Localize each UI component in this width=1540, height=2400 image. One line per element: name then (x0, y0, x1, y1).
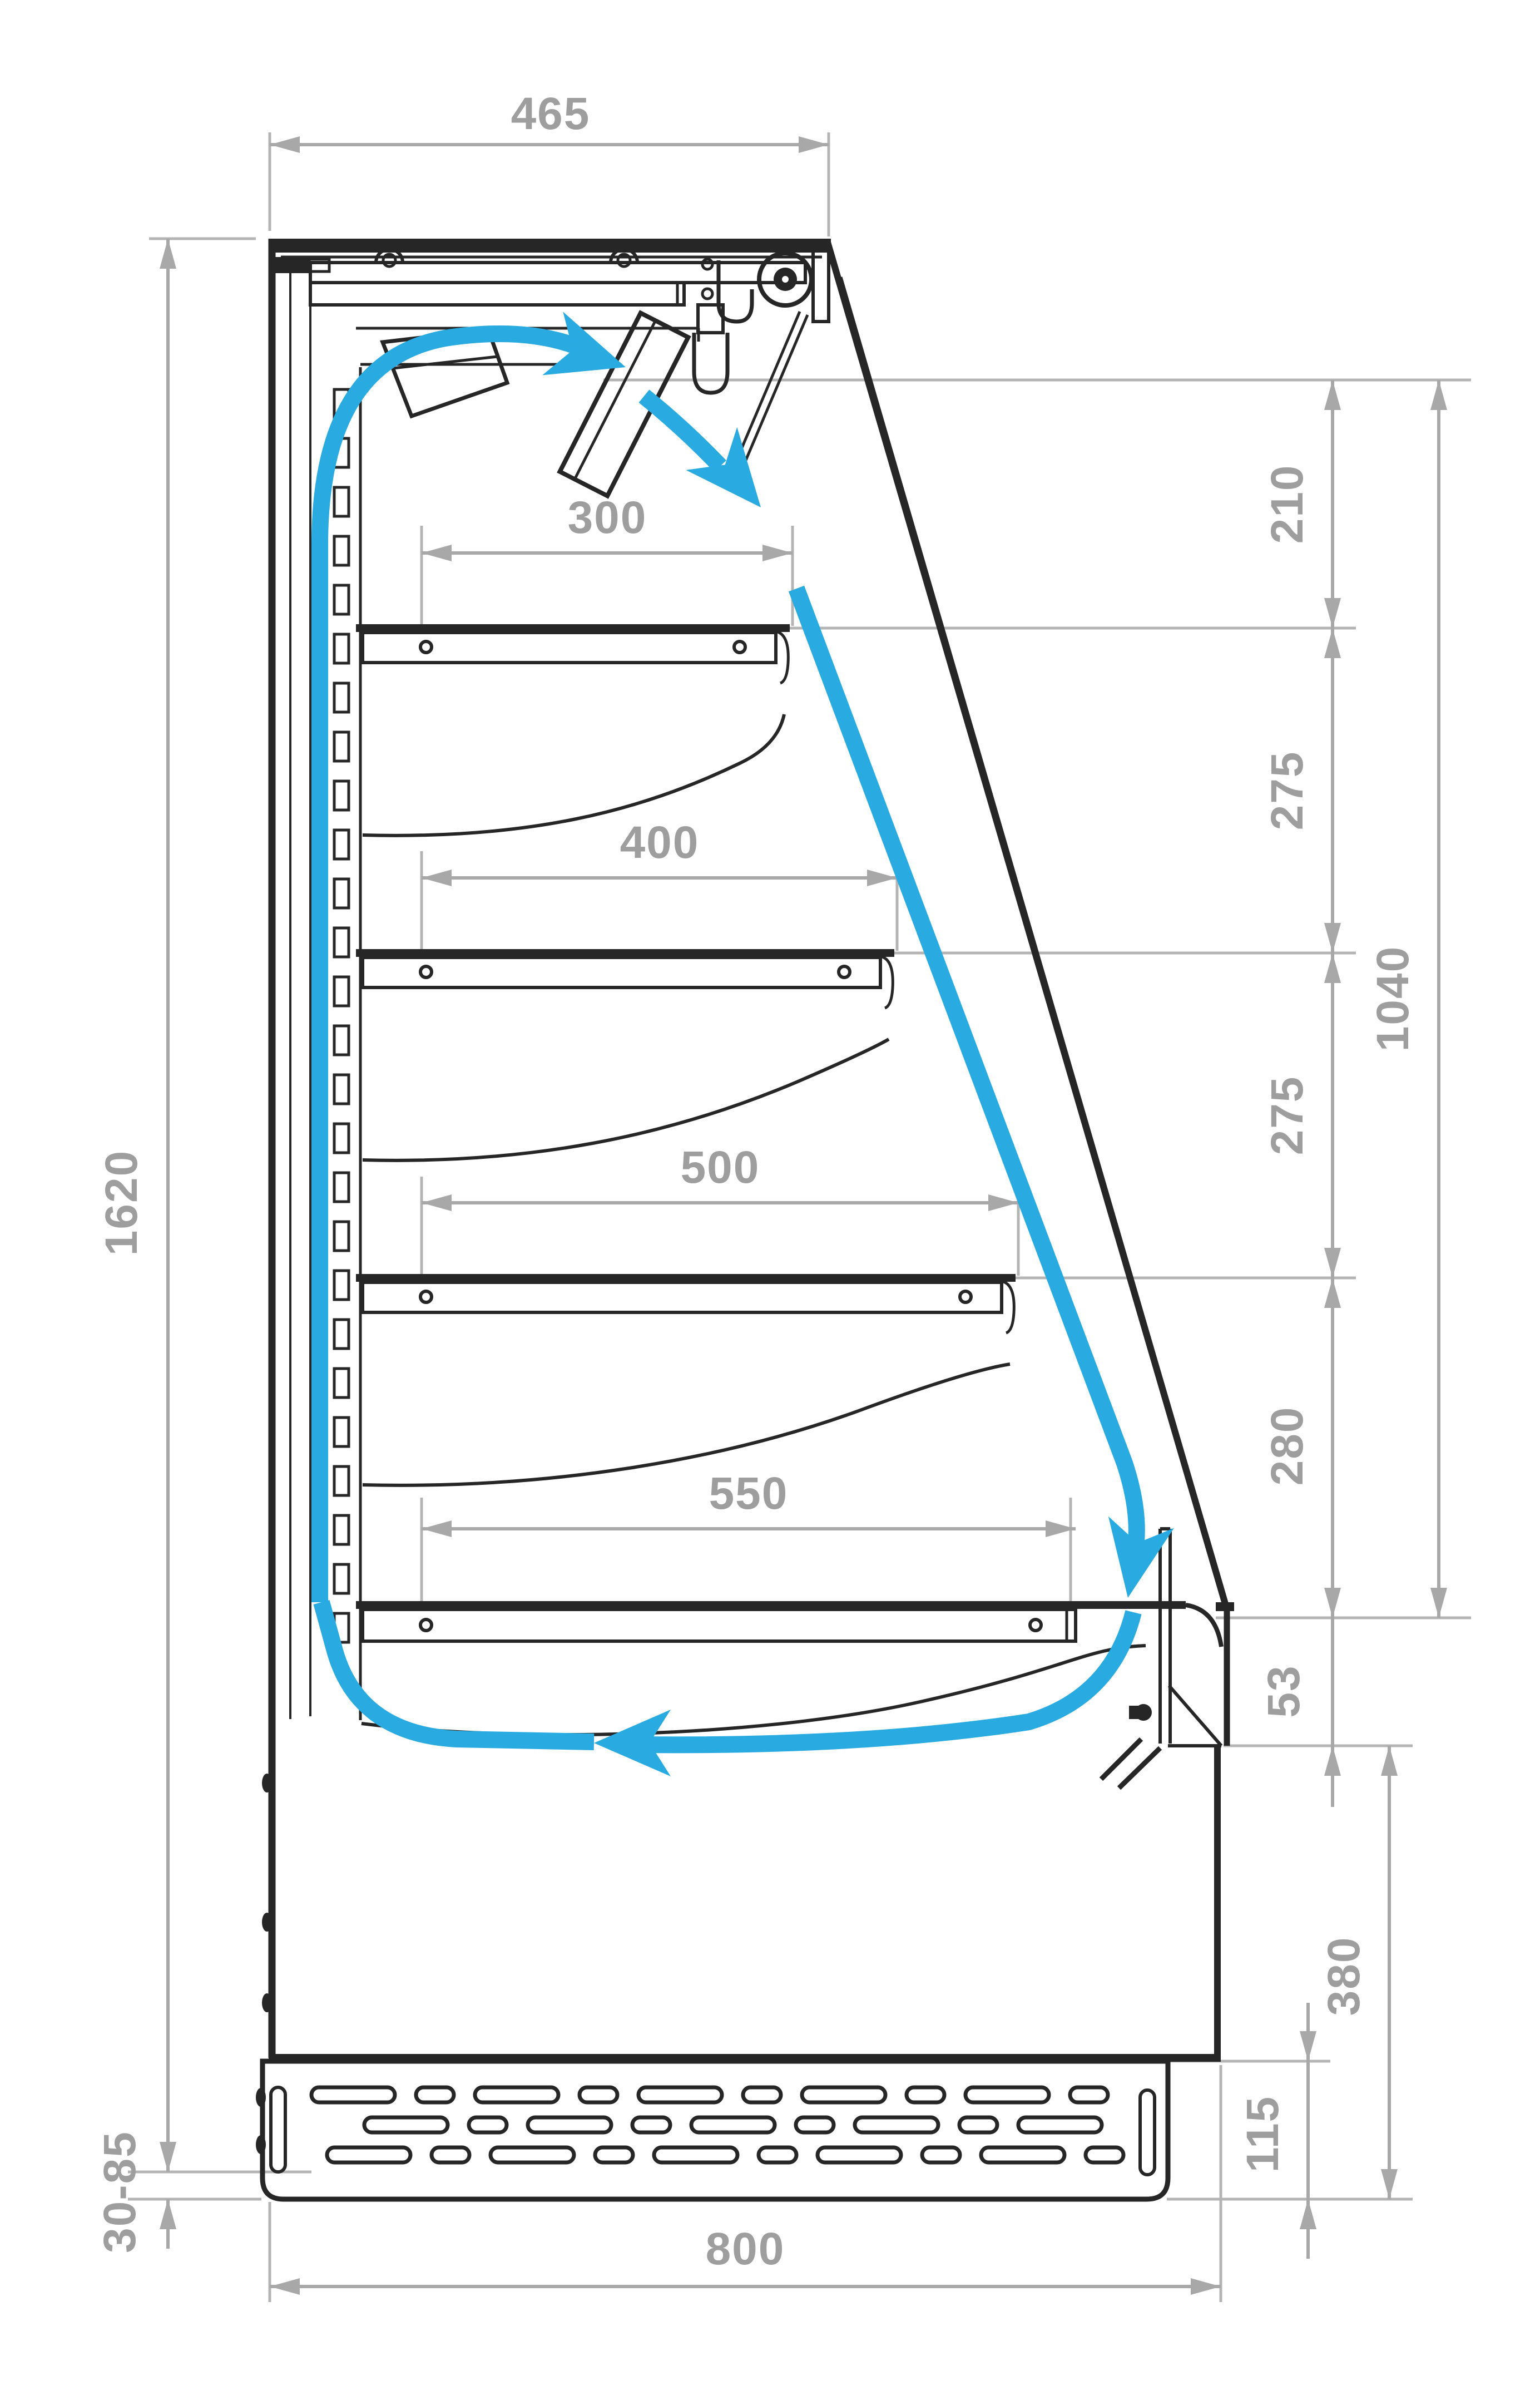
lamp-tube (694, 333, 727, 393)
dim-sill-53-label: 53 (1259, 1665, 1309, 1717)
vent-slot (469, 2117, 507, 2132)
shelf-standard-slot (334, 1418, 349, 1446)
shelf-standard-slot (334, 487, 349, 516)
vent-slot (907, 2087, 944, 2102)
vent-slot (759, 2147, 796, 2162)
shelf-standard-slot (334, 1369, 349, 1397)
vent-slot (965, 2087, 1049, 2102)
vent-slot (632, 2117, 670, 2132)
vent-end-slot (271, 2087, 285, 2172)
vent-slot (638, 2087, 722, 2102)
shelf-standard-slot (334, 1271, 349, 1300)
vent-slot (691, 2117, 775, 2132)
vent-panel (263, 2061, 1168, 2199)
airflow-air-curtain (796, 589, 1137, 1547)
shelf-standard-slot (334, 1564, 349, 1593)
shelf-standard-slot (334, 1075, 349, 1104)
shelf-standard-slots (334, 389, 349, 1642)
cabinet-outline (256, 239, 1234, 2199)
shelf-standard-slot (334, 977, 349, 1006)
shelf-standard-slot (334, 634, 349, 663)
airflow-path (320, 312, 1174, 1776)
shelf-standard-slot (334, 1222, 349, 1251)
airflow-return-right (640, 1612, 1133, 1745)
shelf-300 (356, 628, 790, 836)
vent-slot (654, 2147, 737, 2162)
dim-overall-height-label: 1620 (96, 1150, 147, 1256)
shelf-standard-slot (334, 1026, 349, 1055)
vent-slot (818, 2147, 901, 2162)
dim-shelf-300-label: 300 (568, 492, 647, 543)
shelf-500 (356, 1278, 1016, 1485)
support-strut (735, 312, 800, 463)
dim-overall-depth-label: 800 (706, 2224, 785, 2274)
dim-shelf-550-label: 550 (709, 1468, 789, 1519)
machine-base (256, 1746, 1221, 2154)
dim-spacing-210-label: 210 (1262, 465, 1313, 544)
vent-slot (491, 2147, 574, 2162)
dim-total-1040-label: 1040 (1368, 946, 1418, 1051)
vent-slot (802, 2087, 885, 2102)
vent-grille (311, 2087, 1123, 2162)
shelf-standard-slot (334, 1173, 349, 1202)
dim-spacing-275b-label: 275 (1262, 1076, 1313, 1155)
vent-slot (595, 2147, 633, 2162)
vent-slot (855, 2117, 938, 2132)
dim-vent-115-label: 115 (1237, 2096, 1288, 2172)
vent-slot (311, 2087, 395, 2102)
shelf-standard-slot (334, 585, 349, 614)
vent-slot (364, 2117, 448, 2132)
shelf-standard-slot (334, 1320, 349, 1349)
dim-shelf-400-label: 400 (620, 817, 700, 868)
dim-feet-range-label: 30-85 (95, 2131, 145, 2253)
shelf-standard-slot (334, 1466, 349, 1495)
dim-top-depth-label: 465 (511, 88, 591, 139)
dim-spacing-280-label: 280 (1262, 1406, 1313, 1486)
shelf-standard-slot (334, 732, 349, 761)
vent-slot (981, 2147, 1064, 2162)
vent-slot (580, 2087, 617, 2102)
shelf-standard-slot (334, 928, 349, 957)
vent-slot (796, 2117, 834, 2132)
vent-slot (327, 2147, 410, 2162)
shelf-standard-slot (334, 1515, 349, 1544)
shelf-standard-slot (334, 781, 349, 810)
display-case-cross-section: 465 300 400 500 550 210 275 275 280 1040… (0, 0, 1540, 2400)
dim-shelf-500-label: 500 (681, 1142, 760, 1193)
vent-slot (1018, 2117, 1102, 2132)
dim-spacing-275a-label: 275 (1262, 751, 1313, 831)
shelf-400 (356, 953, 894, 1161)
vent-slot (959, 2117, 997, 2132)
light-box (310, 283, 684, 305)
technical-drawing-page: 465 300 400 500 550 210 275 275 280 1040… (0, 0, 1540, 2400)
dim-base-380-label: 380 (1319, 1937, 1369, 2016)
shelf-standard-slot (334, 879, 349, 908)
vent-slot (1070, 2087, 1108, 2102)
dimension-lines (160, 136, 1447, 2295)
vent-end-slot (1140, 2090, 1155, 2175)
vent-slot (475, 2087, 558, 2102)
vent-slot (743, 2087, 781, 2102)
shelf-standard-slot (334, 683, 349, 712)
vent-slot (528, 2117, 611, 2132)
vent-slot (922, 2147, 960, 2162)
shelf-standard-slot (334, 536, 349, 565)
shelf-standard-slot (334, 830, 349, 859)
shelf-standard-slot (334, 1124, 349, 1153)
vent-slot (1086, 2147, 1123, 2162)
airflow-outlet (644, 396, 720, 466)
vent-slot (416, 2087, 454, 2102)
top-panel (269, 239, 831, 253)
vent-slot (432, 2147, 469, 2162)
